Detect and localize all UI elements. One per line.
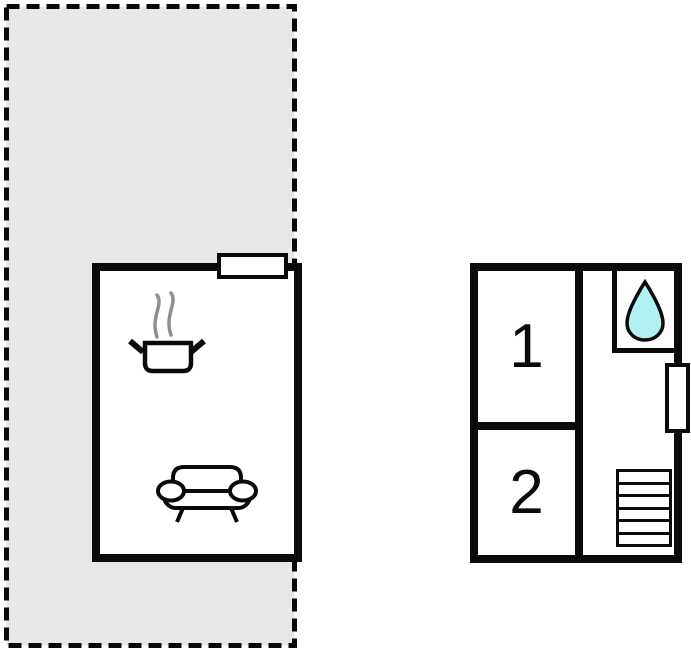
door-marker <box>665 363 690 433</box>
interior-wall-horizontal <box>478 422 575 430</box>
stair-step <box>619 485 669 495</box>
sofa-leg <box>231 508 237 522</box>
stair-step <box>619 497 669 507</box>
stair-step <box>619 472 669 482</box>
stair-step <box>619 535 669 545</box>
building-right: 1 2 <box>470 263 682 563</box>
sofa-icon <box>156 463 258 525</box>
room-1-label: 1 <box>478 271 575 422</box>
stair-step <box>619 522 669 532</box>
sofa-armrest <box>158 482 184 501</box>
steaming-pot-icon <box>124 291 210 377</box>
interior-wall-vertical <box>575 271 583 555</box>
stairs-icon <box>616 469 672 547</box>
steam-line-icon <box>155 295 159 337</box>
water-drop-icon <box>623 279 667 343</box>
water-drop-shape <box>627 282 663 340</box>
stair-step <box>619 510 669 520</box>
sofa-leg <box>177 508 183 522</box>
steam-line-icon <box>169 293 173 335</box>
floorplan-canvas: 1 2 <box>0 0 691 652</box>
pot-handle-icon <box>130 341 143 352</box>
sofa-armrest <box>230 482 256 501</box>
room-2-label: 2 <box>478 430 575 555</box>
pot-body <box>145 343 191 371</box>
window-marker <box>217 253 288 279</box>
